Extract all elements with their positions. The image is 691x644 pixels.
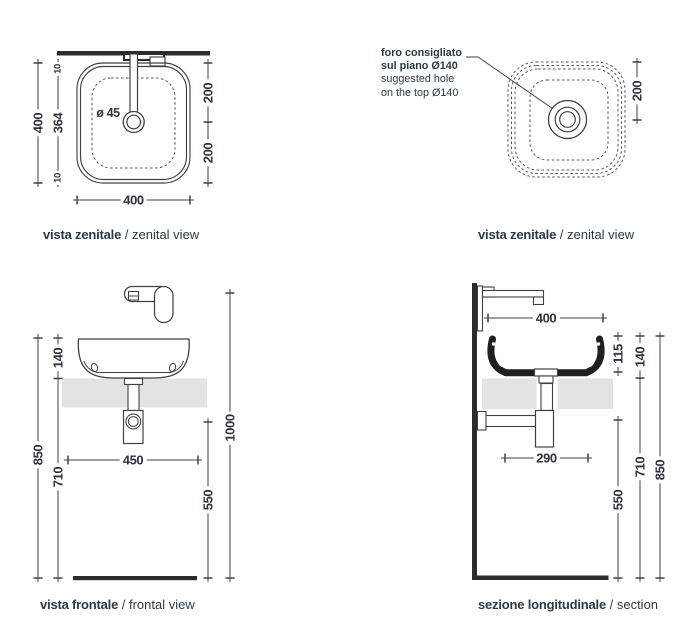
caption-frontal-it: vista frontale <box>40 597 118 612</box>
section-view-drawing <box>472 283 665 582</box>
note-line-1: foro consigliato <box>381 47 462 60</box>
floor-line <box>73 576 197 580</box>
sink-section-profile <box>491 339 601 373</box>
caption-frontal: vista frontale / frontal view <box>40 598 195 613</box>
dim-label-200-bottom: 200 <box>202 139 215 166</box>
dim-label-drain-diameter: ø 45 <box>93 107 122 120</box>
drain-pipe-section <box>541 384 553 411</box>
suggested-hole-circle <box>549 101 587 139</box>
frontal-view-drawing <box>34 287 235 583</box>
drain-flange <box>125 379 143 385</box>
dim-label-710-front: 710 <box>52 464 65 491</box>
dim-label-115-section: 115 <box>612 341 625 367</box>
note-line-3: suggested hole <box>381 73 462 86</box>
dim-label-400-bottom: 400 <box>120 194 147 207</box>
caption-section: sezione longitudinale / section <box>478 598 658 613</box>
caption-section-it: sezione longitudinale <box>478 597 606 612</box>
sink-section <box>491 339 601 383</box>
dim-label-1000-front: 1000 <box>224 411 237 444</box>
dim-label-400-section: 400 <box>533 312 560 325</box>
faucet-spout-tip <box>534 297 544 305</box>
floor-line-section <box>472 576 609 581</box>
caption-zenital-right-en: / zenital view <box>560 227 634 242</box>
caption-zenital-right: vista zenitale / zenital view <box>478 228 634 243</box>
faucet-wall-plate <box>478 286 483 331</box>
faucet-handle-box <box>150 57 165 66</box>
dim-label-140-section: 140 <box>634 344 647 371</box>
dim-label-710-section: 710 <box>634 454 647 481</box>
faucet-spout-section <box>483 291 544 298</box>
dim-label-10-top: 10 <box>53 62 63 76</box>
dim-label-290-section: 290 <box>533 452 560 465</box>
suggested-hole-note: foro consigliato sul piano Ø140 suggeste… <box>381 47 462 100</box>
dim-label-550-front: 550 <box>202 487 215 514</box>
caption-zenital-right-it: vista zenitale <box>478 227 556 242</box>
caption-section-en: / section <box>610 597 658 612</box>
wall-line-section <box>472 283 477 580</box>
dim-label-364: 364 <box>52 110 65 137</box>
dim-label-400-left: 400 <box>32 110 45 137</box>
drain-flange-section <box>535 369 558 376</box>
dim-label-200-top: 200 <box>202 79 215 106</box>
wall-faucet-front <box>125 287 174 323</box>
dim-label-140-front: 140 <box>52 345 65 372</box>
sink-front <box>78 339 189 378</box>
dim-label-550-section: 550 <box>612 487 625 514</box>
caption-zenital-left-it: vista zenitale <box>43 227 121 242</box>
dim-label-850-front: 850 <box>32 442 45 469</box>
drain-neck-section <box>539 376 553 383</box>
dim-label-450-front: 450 <box>120 454 147 467</box>
zenital-view-right-drawing <box>466 57 642 177</box>
note-line-4: on the top Ø140 <box>381 87 462 100</box>
siphon-trap-section <box>536 411 554 448</box>
waste-pipe-wall-flange <box>478 412 487 431</box>
drawing-geometry <box>0 0 691 644</box>
technical-drawing-sheet: 400 10 364 10 200 200 400 ø 45 200 foro … <box>0 0 691 644</box>
caption-zenital-left-en: / zenital view <box>125 227 199 242</box>
rim-curl-right <box>597 342 600 345</box>
dim-label-10-bottom: 10 <box>53 171 63 185</box>
note-line-2: sul piano Ø140 <box>381 60 462 73</box>
faucet-spout <box>155 287 174 323</box>
faucet-spout-top <box>130 54 138 114</box>
drain-pipe <box>128 385 139 411</box>
rim-curl-left <box>492 342 495 345</box>
caption-zenital-left: vista zenitale / zenital view <box>43 228 199 243</box>
caption-frontal-en: / frontal view <box>122 597 195 612</box>
dim-label-850-section: 850 <box>654 457 667 484</box>
dim-label-200-hole: 200 <box>631 78 644 105</box>
